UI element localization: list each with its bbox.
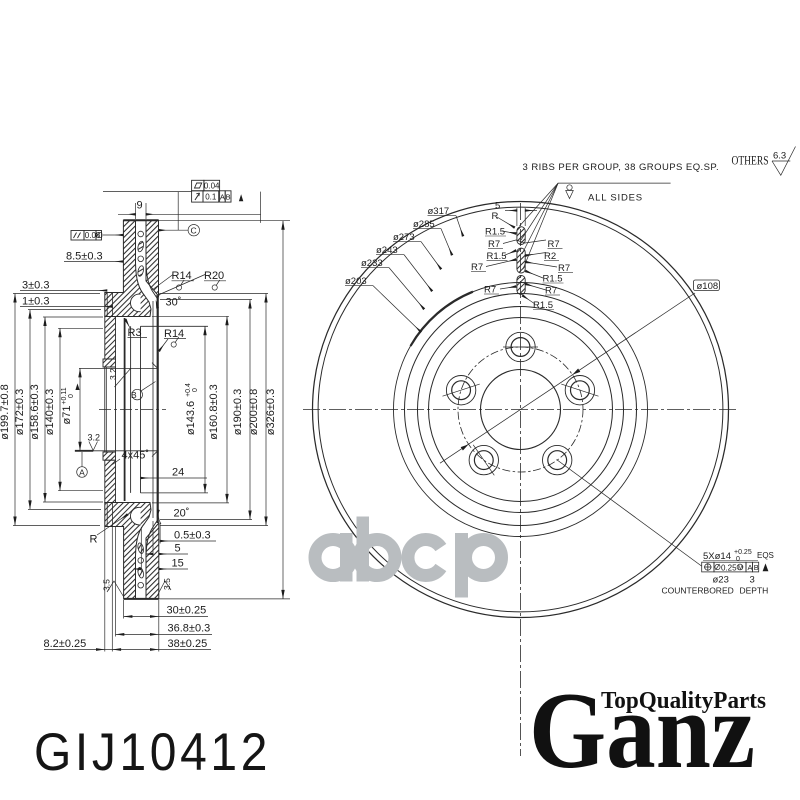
svg-text:R14: R14 [164, 328, 184, 340]
svg-text:DEPTH: DEPTH [740, 586, 769, 596]
svg-text:ø143.6: ø143.6 [185, 401, 197, 435]
svg-text:ALL SIDES: ALL SIDES [588, 193, 643, 204]
svg-text:1±0.3: 1±0.3 [22, 296, 49, 308]
svg-text:R: R [492, 211, 499, 222]
svg-text:ø190±0.3: ø190±0.3 [232, 389, 244, 435]
svg-text:ø160.8±0.3: ø160.8±0.3 [208, 384, 220, 440]
svg-text:R14: R14 [172, 270, 192, 282]
svg-text:24: 24 [172, 467, 184, 479]
svg-text:0: 0 [192, 388, 199, 392]
svg-text:+0.11: +0.11 [61, 387, 68, 404]
svg-text:B: B [754, 563, 759, 572]
svg-text:36.8±0.3: 36.8±0.3 [168, 623, 211, 635]
svg-text:ø71: ø71 [61, 406, 73, 425]
svg-text:3±0.3: 3±0.3 [22, 280, 49, 292]
svg-text:30˚: 30˚ [166, 297, 182, 309]
svg-text:M: M [738, 566, 743, 572]
svg-text:3.2: 3.2 [88, 433, 101, 443]
svg-text:0.04: 0.04 [204, 181, 220, 190]
svg-text:EQS: EQS [757, 551, 774, 560]
svg-text:B: B [226, 192, 231, 201]
svg-text:ø108: ø108 [697, 281, 719, 292]
svg-text:R20: R20 [204, 270, 224, 282]
svg-text:3.2: 3.2 [108, 368, 118, 380]
svg-text:8.2±0.25: 8.2±0.25 [44, 638, 87, 650]
svg-text:ø158.6±0.3: ø158.6±0.3 [29, 384, 41, 440]
svg-text:3: 3 [750, 575, 755, 586]
svg-text:A: A [79, 467, 85, 477]
svg-text:0.5±0.3: 0.5±0.3 [174, 530, 211, 542]
svg-text:8.5±0.3: 8.5±0.3 [66, 251, 103, 263]
svg-text:COUNTERBORED: COUNTERBORED [662, 586, 734, 596]
svg-text:R3: R3 [128, 327, 142, 339]
svg-text:3 RIBS PER GROUP, 38 GROUPS EQ: 3 RIBS PER GROUP, 38 GROUPS EQ.SP. [523, 162, 720, 173]
svg-text:ø23: ø23 [713, 575, 729, 586]
svg-text:OTHERS: OTHERS [732, 154, 769, 168]
svg-text:3.5: 3.5 [102, 579, 112, 591]
svg-text:5: 5 [175, 543, 181, 555]
svg-text:38±0.25: 38±0.25 [168, 638, 208, 650]
svg-text:C: C [97, 231, 103, 240]
svg-text:+0.4: +0.4 [185, 383, 192, 397]
svg-text:0.25: 0.25 [721, 563, 737, 572]
svg-text:0.1: 0.1 [205, 192, 217, 201]
svg-text:R: R [90, 534, 98, 546]
svg-text:ø172±0.3: ø172±0.3 [14, 389, 26, 435]
svg-text:0: 0 [68, 394, 75, 398]
svg-text:C: C [191, 226, 197, 236]
svg-text:ø200±0.8: ø200±0.8 [248, 389, 260, 435]
svg-text:30±0.25: 30±0.25 [167, 605, 207, 617]
svg-text:6.3: 6.3 [773, 151, 786, 162]
svg-text:3.5: 3.5 [162, 578, 172, 590]
svg-text:Ganz: Ganz [529, 670, 755, 791]
svg-text:5: 5 [495, 201, 500, 212]
svg-text:A: A [220, 192, 225, 201]
svg-text:4x45˚: 4x45˚ [122, 450, 150, 462]
svg-text:ø140±0.3: ø140±0.3 [44, 389, 56, 435]
svg-text:15: 15 [172, 558, 184, 570]
svg-text:9: 9 [137, 200, 143, 212]
svg-text:B: B [131, 390, 137, 400]
svg-text:+0.25: +0.25 [734, 549, 752, 556]
svg-text:ø199.7±0.8: ø199.7±0.8 [0, 384, 11, 440]
svg-text:GIJ10412: GIJ10412 [34, 723, 271, 782]
svg-text:20˚: 20˚ [174, 508, 190, 520]
svg-text:A: A [748, 563, 753, 572]
svg-text:ø326±0.3: ø326±0.3 [265, 389, 277, 435]
